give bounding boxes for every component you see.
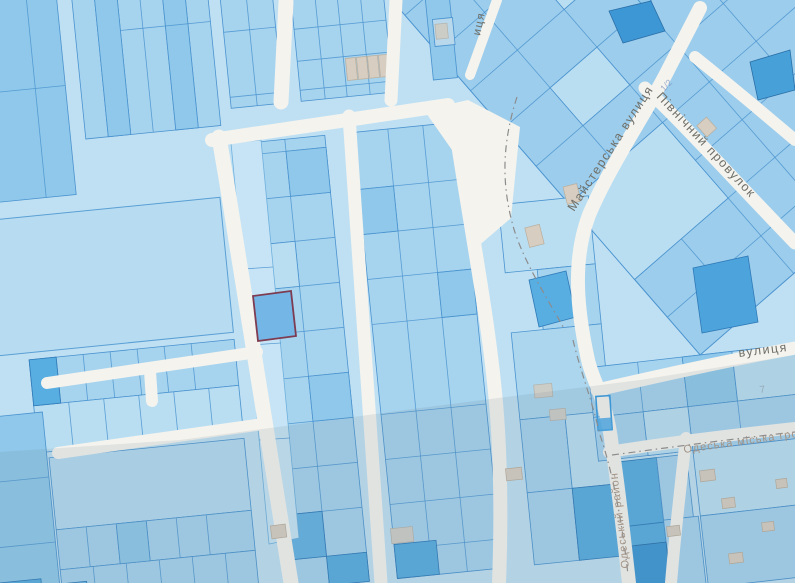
street-stub-north1 <box>281 2 286 102</box>
cadastral-map-viewport[interactable]: Майстерська вулиця Північний провулок ву… <box>0 0 795 583</box>
street-h1-stub <box>150 371 152 401</box>
street-stub-north2 <box>391 0 396 100</box>
selected-parcel[interactable] <box>253 291 296 341</box>
map-canvas[interactable]: Майстерська вулиця Північний провулок ву… <box>0 0 795 583</box>
